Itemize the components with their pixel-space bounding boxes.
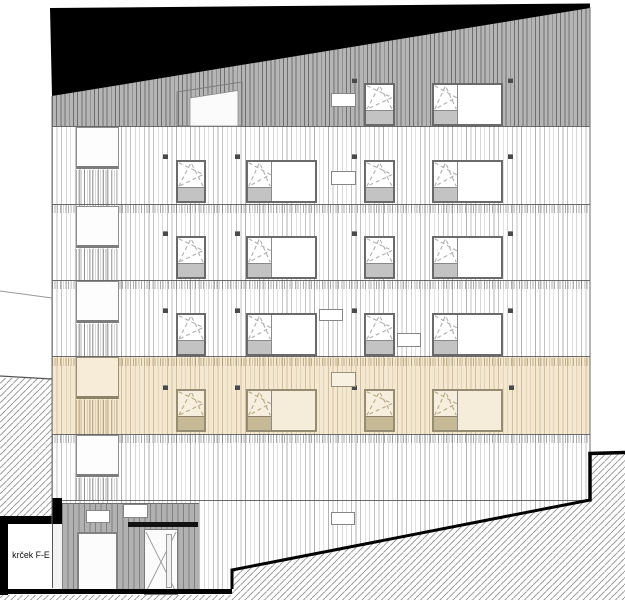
entrance-door xyxy=(144,529,178,595)
tilt-turn-window xyxy=(176,160,206,203)
tilt-turn-window xyxy=(176,236,206,279)
window-fixed-pane xyxy=(272,391,315,430)
window-casement-part xyxy=(248,315,272,354)
vent-icon xyxy=(235,308,240,313)
window-glass xyxy=(434,315,457,340)
floor-line xyxy=(52,356,590,357)
tilt-turn-fixed-window xyxy=(432,313,503,356)
vent-icon xyxy=(352,78,357,83)
vent-icon xyxy=(163,308,168,313)
tilt-turn-fixed-window xyxy=(246,313,317,356)
terrain-line xyxy=(0,376,52,379)
tilt-turn-fixed-window xyxy=(246,160,317,203)
facade-box xyxy=(331,93,356,107)
shop-window xyxy=(77,532,118,593)
window-spandrel xyxy=(366,263,393,277)
window-casement-part xyxy=(248,391,272,430)
window-spandrel xyxy=(178,340,204,354)
attic-band xyxy=(52,0,590,126)
window-spandrel xyxy=(434,110,457,124)
square-window xyxy=(76,206,119,248)
vent-icon xyxy=(235,385,240,390)
cladding-patch xyxy=(76,400,119,434)
terrain-step-line xyxy=(590,453,625,502)
cladding-strip xyxy=(52,205,590,213)
terrain-line xyxy=(0,291,52,298)
vent-icon xyxy=(508,308,513,313)
window-glass xyxy=(366,85,393,110)
facade-box xyxy=(331,372,356,387)
door-glazing-icon xyxy=(145,530,177,594)
window-glass xyxy=(248,162,271,187)
window-fixed-pane xyxy=(458,315,501,354)
vent-icon xyxy=(235,231,240,236)
tilt-turn-fixed-window xyxy=(246,236,317,279)
vent-icon xyxy=(508,154,513,159)
terrain-hatch-left xyxy=(0,378,52,516)
window-glass xyxy=(366,315,393,340)
window-spandrel xyxy=(434,340,457,354)
window-fixed-pane xyxy=(272,238,315,277)
window-fixed-pane xyxy=(458,391,501,430)
tilt-turn-fixed-window xyxy=(432,160,503,203)
floor-line xyxy=(52,434,590,435)
vent-icon xyxy=(352,154,357,159)
window-spandrel xyxy=(434,187,457,201)
window-spandrel xyxy=(366,340,393,354)
facade-box xyxy=(331,171,356,185)
window-glass xyxy=(434,238,457,263)
tilt-turn-window xyxy=(364,160,395,203)
vent-icon xyxy=(508,231,513,236)
floor-line xyxy=(52,280,590,281)
floor-line xyxy=(52,500,590,501)
tilt-turn-fixed-window xyxy=(432,236,503,279)
floor-line xyxy=(52,126,590,127)
window-glass xyxy=(434,162,457,187)
cladding-strip xyxy=(52,281,590,289)
window-casement-part xyxy=(434,315,458,354)
facade-box xyxy=(331,512,355,525)
entrance-sign xyxy=(123,504,148,518)
window-casement-part xyxy=(434,85,458,124)
cladding-strip xyxy=(52,358,590,366)
cladding-patch xyxy=(76,170,119,204)
window-spandrel xyxy=(178,263,204,277)
vent-icon xyxy=(352,231,357,236)
window-spandrel xyxy=(178,187,204,201)
annex-left-wall xyxy=(0,516,8,595)
floor-line xyxy=(52,204,590,205)
window-spandrel xyxy=(248,187,271,201)
entrance-sign xyxy=(86,510,110,523)
elevation-drawing: krček F-E xyxy=(0,0,625,600)
window-fixed-pane xyxy=(458,238,501,277)
annex-label: krček F-E xyxy=(9,550,53,560)
cladding-patch xyxy=(76,324,119,356)
square-window xyxy=(76,127,119,169)
window-glass xyxy=(366,391,393,416)
window-glass xyxy=(434,391,457,416)
window-fixed-pane xyxy=(458,162,501,201)
entrance-canopy xyxy=(128,522,198,527)
window-glass xyxy=(366,162,393,187)
cladding-patch xyxy=(76,478,119,500)
window-spandrel xyxy=(366,110,393,124)
terrain-hatch-bottom xyxy=(0,595,232,600)
cladding-strip xyxy=(52,435,590,443)
vent-icon xyxy=(163,231,168,236)
window-fixed-pane xyxy=(458,85,501,124)
wall-junction-block xyxy=(47,498,62,524)
cladding-patch xyxy=(76,249,119,280)
tilt-turn-window xyxy=(364,389,395,432)
window-glass xyxy=(178,162,204,187)
highlighted-floor-band xyxy=(52,357,590,434)
window-fixed-pane xyxy=(272,315,315,354)
window-glass xyxy=(248,391,271,416)
tilt-turn-fixed-window xyxy=(432,83,503,126)
window-spandrel xyxy=(248,340,271,354)
vent-icon xyxy=(509,385,514,390)
window-spandrel xyxy=(178,416,204,430)
vent-icon xyxy=(508,78,513,83)
tilt-turn-window xyxy=(364,83,395,126)
window-glass xyxy=(366,238,393,263)
tilt-turn-window xyxy=(364,313,395,356)
tilt-turn-window xyxy=(176,313,206,356)
window-spandrel xyxy=(434,263,457,277)
square-window xyxy=(76,281,119,323)
tilt-turn-fixed-window xyxy=(246,389,317,432)
square-window xyxy=(76,357,119,399)
window-glass xyxy=(434,85,457,110)
window-spandrel xyxy=(434,416,457,430)
window-fixed-pane xyxy=(272,162,315,201)
window-glass xyxy=(178,238,204,263)
window-spandrel xyxy=(366,187,393,201)
facade-box xyxy=(397,333,421,347)
window-glass xyxy=(178,315,204,340)
tilt-turn-fixed-window xyxy=(432,389,503,432)
vent-icon xyxy=(235,154,240,159)
tilt-turn-window xyxy=(364,236,395,279)
vent-icon xyxy=(352,308,357,313)
window-spandrel xyxy=(248,416,271,430)
entrance-zone xyxy=(62,503,199,594)
door-side-panel xyxy=(166,534,172,588)
window-casement-part xyxy=(248,162,272,201)
vent-icon xyxy=(163,385,168,390)
window-spandrel xyxy=(248,263,271,277)
window-casement-part xyxy=(434,391,458,430)
window-casement-part xyxy=(248,238,272,277)
window-spandrel xyxy=(366,416,393,430)
window-glass xyxy=(248,315,271,340)
window-glass xyxy=(248,238,271,263)
vent-icon xyxy=(163,154,168,159)
window-casement-part xyxy=(434,162,458,201)
facade-box xyxy=(319,309,343,321)
window-glass xyxy=(178,391,204,416)
window-casement-part xyxy=(434,238,458,277)
tilt-turn-window xyxy=(176,389,206,432)
square-window xyxy=(76,435,119,477)
